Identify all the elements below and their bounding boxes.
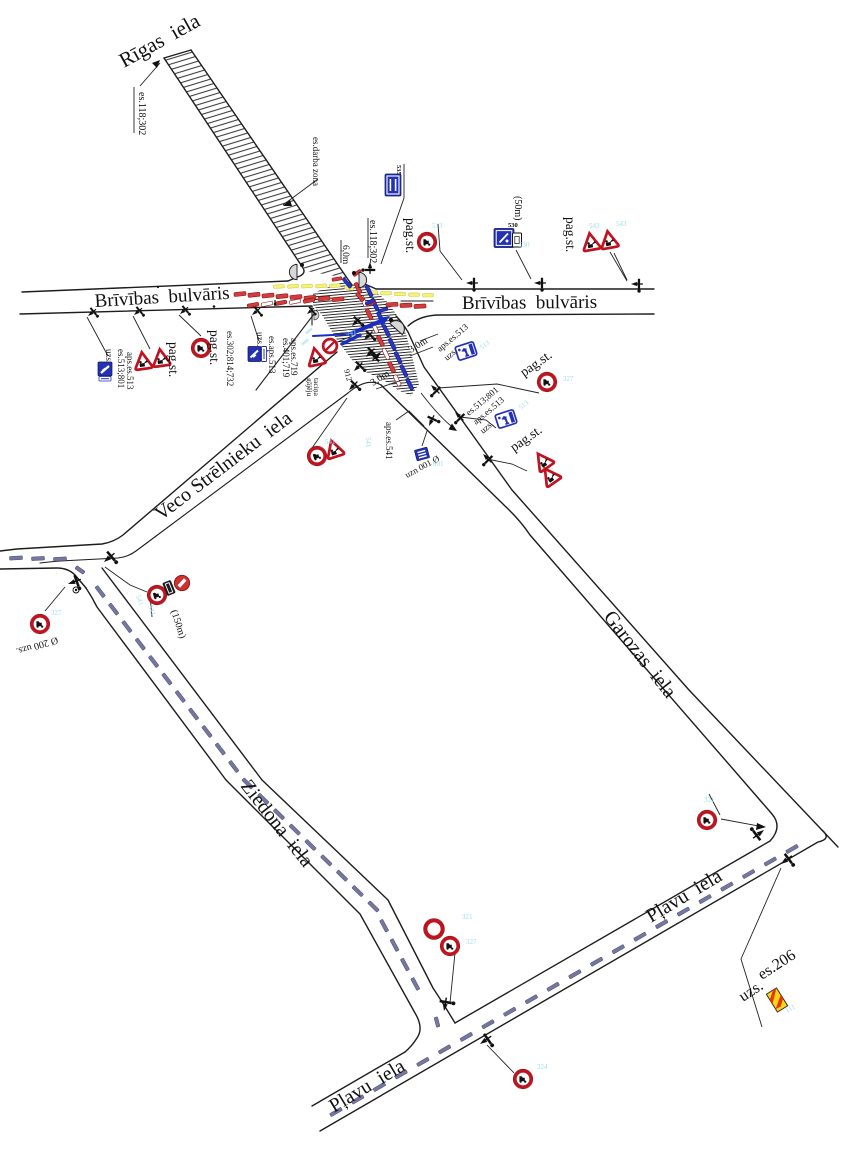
svg-text:543: 543 bbox=[589, 222, 600, 230]
svg-text:321: 321 bbox=[462, 913, 473, 921]
svg-text:001: 001 bbox=[433, 460, 444, 468]
svg-text:aps.es.719: aps.es.719 bbox=[289, 338, 299, 376]
svg-text:aps.es.541: aps.es.541 bbox=[384, 422, 394, 460]
svg-text:535: 535 bbox=[395, 165, 402, 176]
svg-text:513: 513 bbox=[432, 222, 443, 230]
svg-text:es.darba zona: es.darba zona bbox=[311, 137, 321, 186]
svg-text:543: 543 bbox=[616, 220, 627, 228]
svg-text:Brīvības bulvāris: Brīvības bulvāris bbox=[462, 292, 597, 314]
svg-text:327: 327 bbox=[51, 609, 62, 617]
svg-text:324: 324 bbox=[537, 1063, 548, 1071]
svg-text:es.513;801: es.513;801 bbox=[116, 349, 126, 388]
svg-text:es.118;302: es.118;302 bbox=[136, 92, 147, 135]
svg-text:es.118;302: es.118;302 bbox=[367, 220, 378, 263]
svg-text:pag.st.: pag.st. bbox=[563, 217, 578, 252]
svg-text:327: 327 bbox=[563, 375, 574, 383]
svg-text:es.aps.513: es.aps.513 bbox=[267, 336, 277, 374]
svg-text:6,0m: 6,0m bbox=[340, 245, 350, 265]
svg-text:pag.st.: pag.st. bbox=[166, 342, 181, 377]
svg-text:530: 530 bbox=[508, 222, 518, 229]
svg-text:541: 541 bbox=[364, 437, 372, 448]
svg-text:pag.st.: pag.st. bbox=[403, 218, 418, 253]
svg-text:uzs.: uzs. bbox=[255, 332, 265, 346]
svg-text:541: 541 bbox=[346, 329, 357, 337]
svg-text:321: 321 bbox=[704, 796, 715, 804]
svg-text:541: 541 bbox=[325, 438, 336, 446]
svg-text:es.302;814;732: es.302;814;732 bbox=[225, 331, 235, 386]
svg-text:(50m): (50m) bbox=[512, 196, 523, 220]
svg-text:uzs.: uzs. bbox=[104, 349, 114, 363]
svg-text:aps.es.513: aps.es.513 bbox=[125, 352, 135, 390]
svg-text:530: 530 bbox=[519, 241, 530, 249]
svg-text:327: 327 bbox=[466, 938, 477, 946]
svg-text:taciņa: taciņa bbox=[311, 378, 321, 397]
svg-text:pag.st.: pag.st. bbox=[207, 330, 222, 365]
